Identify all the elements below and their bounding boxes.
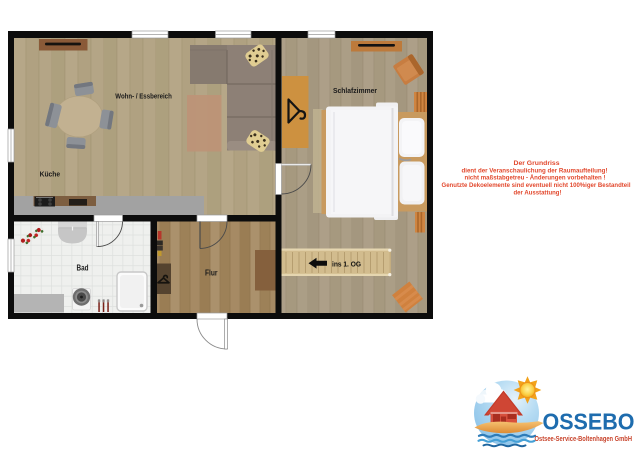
svg-text:der Ausstattung!: der Ausstattung! xyxy=(514,190,562,197)
svg-text:nicht maßstabgetreu - Änderung: nicht maßstabgetreu - Änderungen vorbeha… xyxy=(465,174,606,182)
svg-text:Genutzte Dekoelemente sind eve: Genutzte Dekoelemente sind eventuell nic… xyxy=(442,182,631,189)
svg-text:Wohn- / Essbereich: Wohn- / Essbereich xyxy=(115,92,172,101)
svg-text:Der Grundriss: Der Grundriss xyxy=(514,160,560,167)
svg-text:OSSEBO: OSSEBO xyxy=(543,409,635,435)
svg-text:Flur: Flur xyxy=(205,268,218,278)
svg-text:Bad: Bad xyxy=(77,263,89,273)
svg-text:Küche: Küche xyxy=(40,170,61,179)
svg-text:ins 1. OG: ins 1. OG xyxy=(332,259,361,268)
svg-text:Schlafzimmer: Schlafzimmer xyxy=(333,86,377,95)
svg-text:Ostsee-Service-Boltenhagen Gmb: Ostsee-Service-Boltenhagen GmbH xyxy=(535,434,633,443)
svg-text:dient der Veranschaulichung de: dient der Veranschaulichung der Raumauft… xyxy=(462,167,608,174)
